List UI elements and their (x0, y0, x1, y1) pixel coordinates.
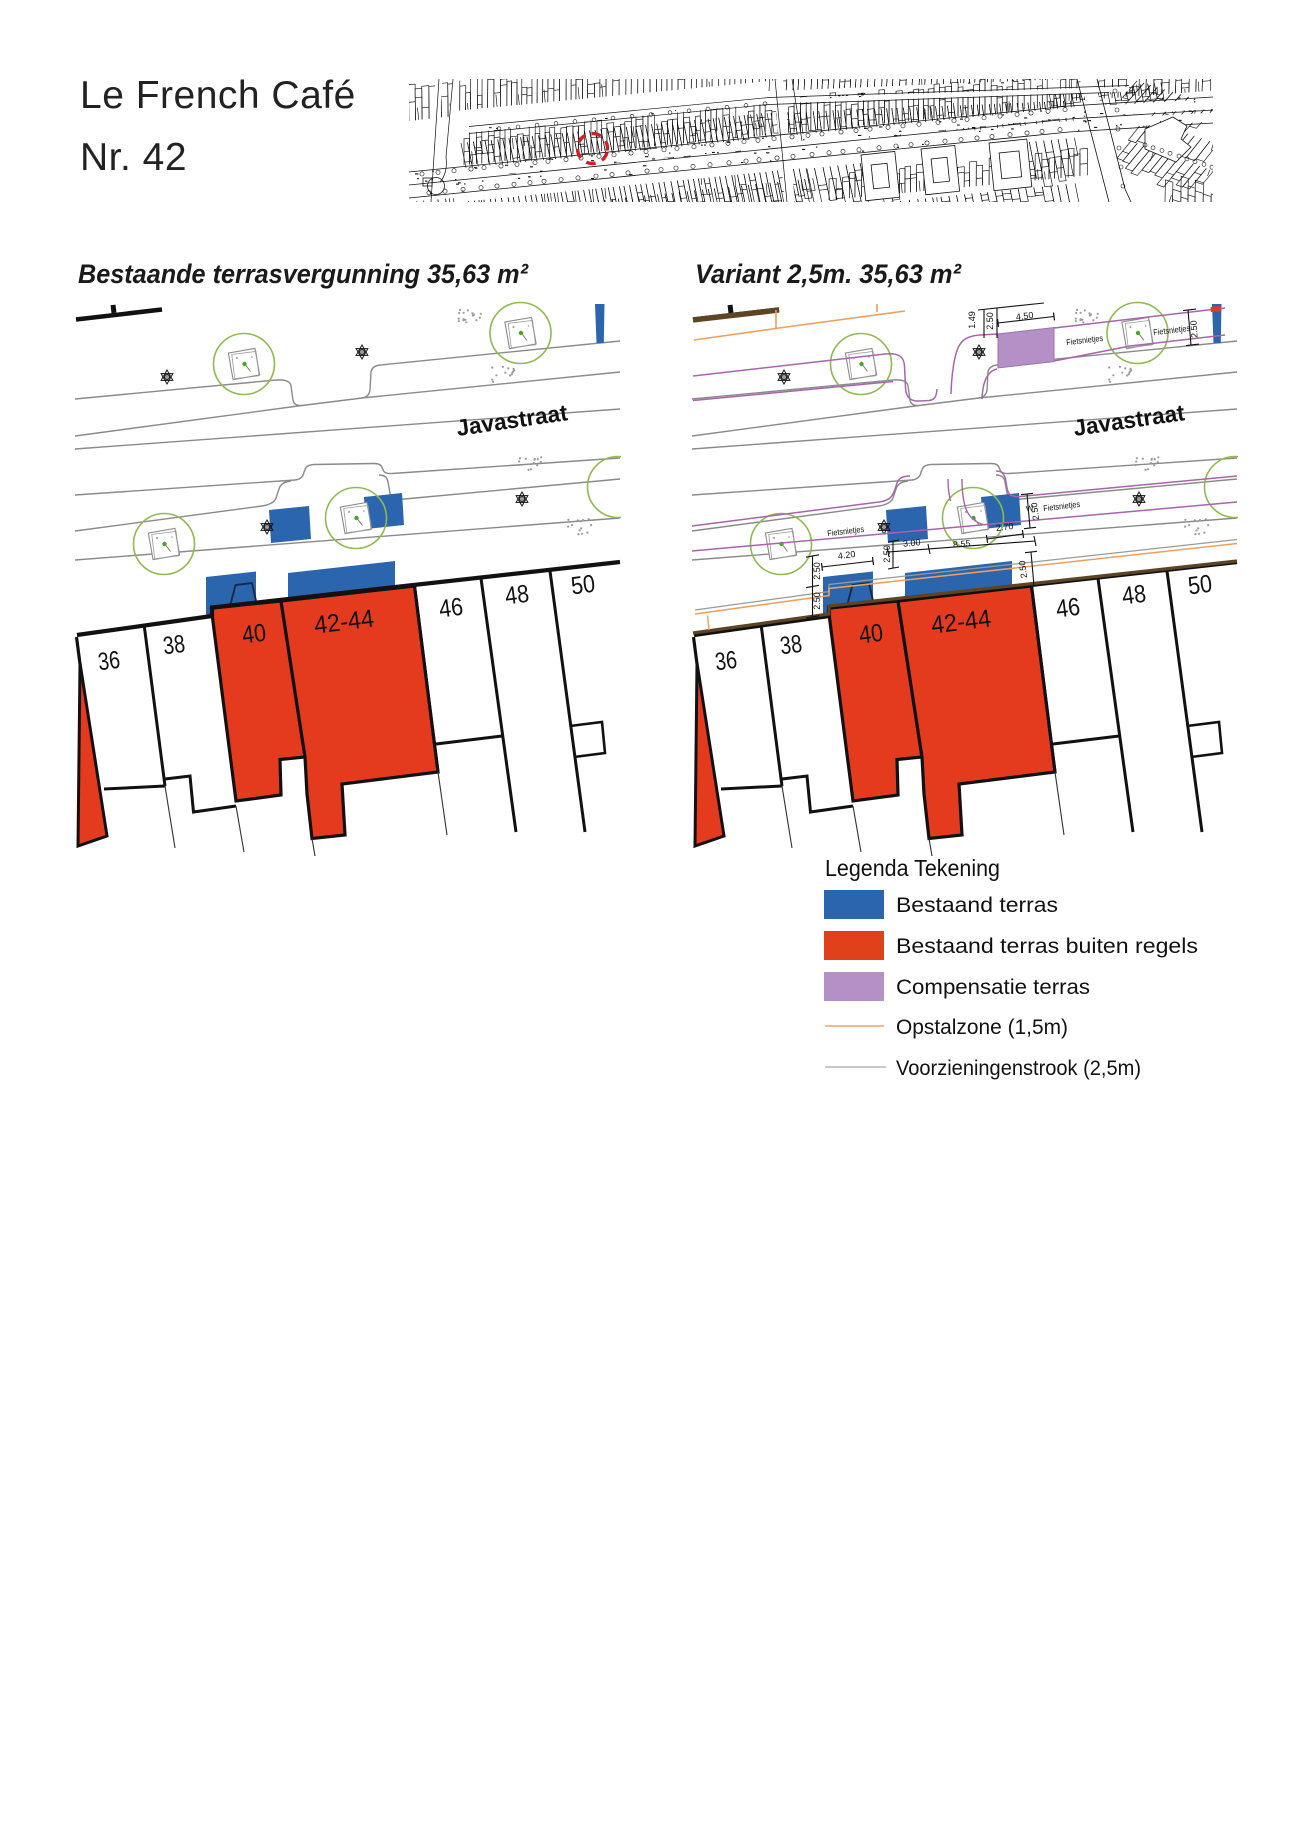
svg-text:Variant 2,5m. 35,63 m²: Variant 2,5m. 35,63 m² (695, 259, 962, 289)
svg-text:2.50: 2.50 (1017, 560, 1029, 579)
svg-text:Nr. 42: Nr. 42 (80, 136, 187, 179)
svg-text:Bestaande terrasvergunning 35,: Bestaande terrasvergunning 35,63 m² (78, 259, 529, 289)
svg-text:2.50: 2.50 (985, 312, 995, 330)
svg-text:4.20: 4.20 (837, 549, 856, 561)
svg-text:Bestaand terras buiten regels: Bestaand terras buiten regels (896, 935, 1198, 958)
svg-text:Compensatie terras: Compensatie terras (896, 976, 1090, 999)
svg-text:W: W (1025, 504, 1034, 514)
svg-text:8.55: 8.55 (953, 538, 971, 549)
svg-text:4.50: 4.50 (1015, 310, 1034, 322)
svg-text:2.50: 2.50 (812, 562, 822, 580)
svg-text:Voorzieningenstrook (2,5m): Voorzieningenstrook (2,5m) (896, 1057, 1141, 1080)
svg-text:Opstalzone (1,5m): Opstalzone (1,5m) (896, 1016, 1068, 1039)
svg-text:2.50: 2.50 (1189, 320, 1200, 338)
svg-text:Legenda Tekening: Legenda Tekening (825, 855, 1000, 881)
svg-text:3.00: 3.00 (903, 537, 921, 548)
svg-text:Bestaand terras: Bestaand terras (896, 894, 1058, 917)
svg-text:1.49: 1.49 (967, 311, 977, 329)
svg-text:2.50: 2.50 (812, 592, 822, 610)
svg-text:2.70: 2.70 (995, 521, 1014, 533)
svg-text:Le French Café: Le French Café (80, 74, 356, 117)
